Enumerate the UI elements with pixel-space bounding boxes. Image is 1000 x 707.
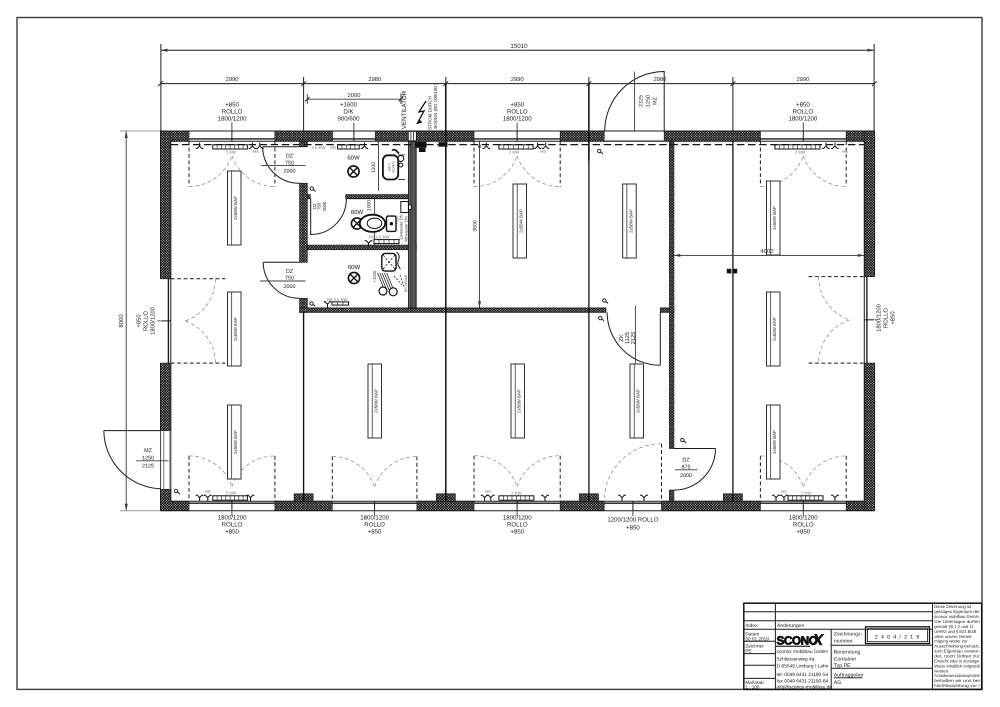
svg-text:15010: 15010 bbox=[510, 43, 528, 50]
svg-text:2990: 2990 bbox=[511, 76, 524, 83]
svg-text:2x58W BAP: 2x58W BAP bbox=[374, 389, 379, 413]
svg-text:1100: 1100 bbox=[371, 162, 377, 173]
svg-text:+1500: +1500 bbox=[372, 270, 377, 282]
svg-text:60W: 60W bbox=[348, 264, 361, 271]
svg-text:2000: 2000 bbox=[680, 473, 692, 479]
svg-text:Zeichnungs-: Zeichnungs- bbox=[834, 632, 863, 638]
svg-text:+850: +850 bbox=[225, 529, 239, 536]
svg-text:+1100: +1100 bbox=[396, 215, 400, 224]
svg-text:DZ: DZ bbox=[682, 458, 690, 464]
svg-text:2000: 2000 bbox=[284, 284, 296, 290]
svg-text:900/600: 900/600 bbox=[337, 116, 360, 123]
svg-text:2x58W BAP: 2x58W BAP bbox=[636, 389, 641, 413]
svg-text:HS: HS bbox=[540, 149, 546, 154]
svg-text:2x58W BAP: 2x58W BAP bbox=[517, 389, 522, 413]
svg-text:2x58W BAP: 2x58W BAP bbox=[628, 209, 633, 233]
svg-text:sconox mobilbau GmbH: sconox mobilbau GmbH bbox=[777, 649, 829, 655]
svg-text:30.01.2019: 30.01.2019 bbox=[745, 637, 769, 642]
svg-text:nummer: nummer bbox=[834, 638, 853, 644]
svg-text:+850: +850 bbox=[890, 311, 897, 325]
svg-text:1800/1200: 1800/1200 bbox=[788, 116, 817, 123]
svg-text:+850: +850 bbox=[796, 101, 810, 108]
svg-text:BD DECKE: BD DECKE bbox=[404, 274, 408, 292]
svg-text:1000: 1000 bbox=[366, 200, 372, 211]
svg-text:+850: +850 bbox=[368, 529, 382, 536]
svg-text:X: X bbox=[812, 632, 825, 649]
svg-text:1800/1200: 1800/1200 bbox=[150, 306, 157, 335]
svg-text:2000: 2000 bbox=[322, 201, 327, 211]
svg-text:8000: 8000 bbox=[118, 314, 125, 328]
svg-text:HS: HS bbox=[842, 149, 848, 154]
svg-text:3500: 3500 bbox=[472, 220, 478, 232]
svg-text:2 KW: 2 KW bbox=[801, 491, 811, 496]
svg-text:HS: HS bbox=[205, 489, 211, 494]
svg-text:BODEN (BD 100/100 ): BODEN (BD 100/100 ) bbox=[433, 83, 438, 129]
svg-text:Abwasser DN: Abwasser DN bbox=[403, 216, 408, 242]
svg-text:600/400: 600/400 bbox=[392, 161, 396, 173]
svg-text:2x58W BAP: 2x58W BAP bbox=[772, 206, 777, 230]
svg-text:Benennung: Benennung bbox=[834, 649, 861, 655]
svg-text:DZ: DZ bbox=[286, 154, 294, 160]
svg-text:Änderungen: Änderungen bbox=[777, 622, 804, 629]
svg-text:ROLLO: ROLLO bbox=[143, 311, 150, 331]
svg-text:+1600: +1600 bbox=[340, 101, 358, 108]
svg-text:HS: HS bbox=[485, 489, 491, 494]
svg-text:ROLLO: ROLLO bbox=[507, 522, 528, 529]
svg-text:fax 0049 6431 21190-64: fax 0049 6431 21190-64 bbox=[777, 678, 829, 684]
svg-text:DZ: DZ bbox=[286, 269, 294, 275]
svg-text:Index: Index bbox=[745, 623, 758, 629]
svg-text:ROLLO: ROLLO bbox=[793, 522, 814, 529]
svg-text:Typ PE: Typ PE bbox=[834, 663, 851, 669]
svg-text:875: 875 bbox=[682, 465, 691, 471]
svg-text:ROLLO: ROLLO bbox=[222, 108, 243, 115]
svg-text:+850: +850 bbox=[626, 524, 640, 531]
svg-text:2 KW: 2 KW bbox=[226, 149, 236, 154]
svg-text:+850: +850 bbox=[225, 101, 239, 108]
svg-text:HS: HS bbox=[781, 489, 787, 494]
svg-text:Container: Container bbox=[834, 656, 857, 662]
svg-text:2x58W BAP: 2x58W BAP bbox=[519, 209, 524, 233]
svg-text:2 KW: 2 KW bbox=[511, 491, 521, 496]
svg-text:MZ: MZ bbox=[144, 448, 152, 454]
svg-text:SCONO: SCONO bbox=[777, 634, 818, 648]
svg-text:2990: 2990 bbox=[226, 76, 239, 83]
svg-text:+850: +850 bbox=[135, 314, 142, 328]
svg-text:1800/1200: 1800/1200 bbox=[503, 515, 532, 522]
svg-text:2125: 2125 bbox=[631, 332, 637, 344]
svg-text:ROLLO: ROLLO bbox=[364, 522, 385, 529]
svg-text:ROLLO: ROLLO bbox=[883, 308, 890, 328]
svg-text:HS: HS bbox=[253, 149, 259, 154]
svg-text:ROLLO: ROLLO bbox=[507, 108, 528, 115]
svg-text:2 KW: 2 KW bbox=[509, 149, 519, 154]
svg-text:+850: +850 bbox=[796, 529, 810, 536]
svg-text:1800/1200: 1800/1200 bbox=[218, 116, 247, 123]
svg-text:MZ: MZ bbox=[652, 96, 658, 104]
svg-text:0,5 KW: 0,5 KW bbox=[312, 145, 326, 150]
svg-text:1800/1200: 1800/1200 bbox=[218, 515, 247, 522]
svg-text:750: 750 bbox=[285, 160, 294, 166]
svg-text:STROM DURCH: STROM DURCH bbox=[428, 96, 433, 130]
svg-text:info@sconox-mobilbau.de: info@sconox-mobilbau.de bbox=[777, 684, 833, 690]
svg-text:2000: 2000 bbox=[284, 169, 296, 175]
svg-text:ROLLO: ROLLO bbox=[222, 522, 243, 529]
svg-text:ROLLO: ROLLO bbox=[793, 108, 814, 115]
svg-text:2x58W BAP: 2x58W BAP bbox=[233, 317, 238, 341]
svg-text:tel: 0049 6431 21190-54: tel: 0049 6431 21190-54 bbox=[777, 672, 829, 678]
svg-text:2980: 2980 bbox=[368, 76, 381, 83]
svg-text:1125: 1125 bbox=[625, 332, 631, 344]
svg-text:1800/1200: 1800/1200 bbox=[503, 116, 532, 123]
svg-text:2125: 2125 bbox=[639, 95, 645, 107]
svg-text:1250: 1250 bbox=[142, 455, 154, 461]
svg-text:+850: +850 bbox=[510, 101, 524, 108]
svg-text:1200/1200 ROLLO: 1200/1200 ROLLO bbox=[607, 516, 658, 523]
svg-text:1250: 1250 bbox=[645, 95, 651, 107]
svg-text:Nichtbeachtung vor !: Nichtbeachtung vor ! bbox=[934, 683, 980, 688]
svg-text:2x58W BAP: 2x58W BAP bbox=[772, 317, 777, 341]
svg-text:HS 0,5 KW: HS 0,5 KW bbox=[369, 235, 390, 240]
svg-text:2x58W BAP: 2x58W BAP bbox=[233, 430, 238, 454]
svg-text:750: 750 bbox=[285, 276, 294, 282]
svg-text:2990: 2990 bbox=[796, 76, 809, 83]
svg-text:1800/1200: 1800/1200 bbox=[875, 303, 882, 332]
svg-text:2 KW: 2 KW bbox=[795, 149, 805, 154]
svg-text:D/K: D/K bbox=[343, 108, 353, 115]
svg-text:Schleusenweg 4a: Schleusenweg 4a bbox=[777, 656, 815, 662]
svg-text:2x58W BAP: 2x58W BAP bbox=[772, 430, 777, 454]
svg-text:2125: 2125 bbox=[142, 464, 154, 470]
svg-text:4000: 4000 bbox=[761, 248, 774, 255]
svg-text:VENTILATOR: VENTILATOR bbox=[401, 90, 408, 129]
svg-text:AG: AG bbox=[834, 680, 842, 686]
svg-text:60W: 60W bbox=[347, 154, 360, 161]
svg-text:2 4 0 4 / 2 1 9: 2 4 0 4 / 2 1 9 bbox=[875, 634, 920, 640]
svg-text:+850: +850 bbox=[510, 529, 524, 536]
svg-text:1 : 100: 1 : 100 bbox=[745, 684, 759, 689]
svg-text:D-65549 Limburg / Lahn: D-65549 Limburg / Lahn bbox=[777, 664, 829, 670]
svg-text:PE: PE bbox=[745, 649, 751, 654]
svg-text:2x58W BAP: 2x58W BAP bbox=[233, 196, 238, 220]
svg-text:60W: 60W bbox=[351, 209, 364, 216]
svg-text:2 KW: 2 KW bbox=[226, 491, 236, 496]
svg-text:2000: 2000 bbox=[348, 92, 361, 99]
svg-text:HS 0,5 KW: HS 0,5 KW bbox=[327, 297, 348, 302]
svg-text:HG: HG bbox=[330, 145, 336, 150]
